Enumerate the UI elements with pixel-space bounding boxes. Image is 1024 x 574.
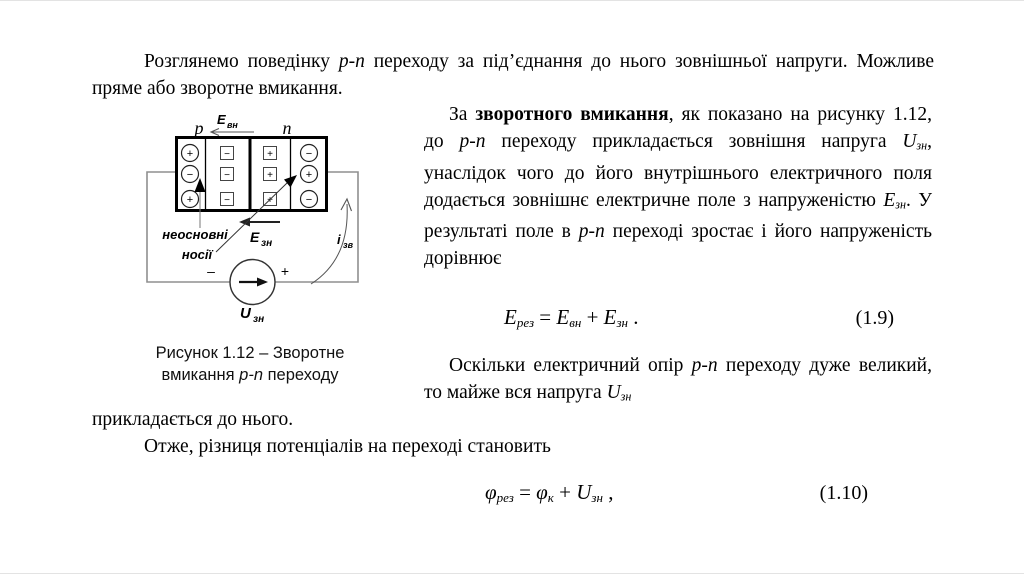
e-vn-sub: вн	[227, 120, 238, 130]
equation-1-9-row: Eрез = Eвн + Eзн . (1.9)	[424, 301, 894, 335]
equation-1-9: Eрез = Eвн + Eзн .	[504, 305, 639, 331]
minority-carriers-label: неосновні	[162, 227, 228, 242]
charge-sign: −	[224, 195, 230, 206]
charge-sign: +	[267, 170, 273, 181]
charge-sign: +	[306, 169, 312, 181]
charge-sign: −	[224, 149, 230, 160]
source-plus: +	[281, 263, 289, 279]
p-region-label: p	[193, 118, 204, 138]
figure-caption: Рисунок 1.12 – Зворотне вмикання p-n пер…	[128, 342, 372, 386]
charge-sign: −	[187, 169, 193, 181]
equation-1-10: φрез = φк + Uзн ,	[485, 480, 613, 506]
equation-number-1-9: (1.9)	[856, 307, 894, 330]
charge-sign: +	[187, 194, 193, 206]
n-region-label: n	[283, 118, 292, 138]
equation-1-10-row: φрез = φк + Uзн , (1.10)	[92, 476, 868, 510]
source-minus: –	[207, 263, 215, 279]
e-vn-label: E	[217, 112, 226, 127]
minority-carriers-label2: носії	[182, 247, 214, 262]
paragraph-reverse-bias: За зворотного вмикання, як показано на р…	[424, 101, 932, 272]
reverse-current-arrowhead	[341, 199, 352, 211]
u-zn-sub: зн	[253, 314, 264, 325]
reverse-current-arrow	[311, 204, 347, 284]
charge-sign: −	[306, 194, 312, 206]
paragraph-intro: Розглянемо поведінку p-n переходу за під…	[92, 48, 934, 102]
charge-sign: +	[187, 148, 193, 160]
e-zn-sub: зн	[261, 238, 272, 249]
e-zn-arrowhead	[239, 218, 250, 227]
i-zv-label: i	[337, 232, 341, 247]
slide-page: Розглянемо поведінку p-n переходу за під…	[0, 0, 1024, 574]
charge-sign: −	[224, 170, 230, 181]
paragraph-resistance-cont: прикладається до нього.	[92, 406, 934, 433]
paragraph-potential: Отже, різниця потенціалів на переході ст…	[92, 433, 934, 460]
charge-sign: −	[306, 148, 312, 160]
u-zn-label: U	[240, 305, 252, 322]
charge-sign: +	[267, 149, 273, 160]
figure-caption-line2: вмикання p-n переходу	[128, 364, 372, 386]
paragraph-resistance-col: Оскільки електричний опір p-n переходу д…	[424, 352, 932, 411]
i-zv-sub: зв	[343, 240, 354, 250]
charge-sign: +	[267, 195, 273, 206]
figure-caption-line1: Рисунок 1.12 – Зворотне	[128, 342, 372, 364]
e-zn-label: E	[250, 229, 260, 245]
equation-number-1-10: (1.10)	[820, 482, 868, 505]
pn-junction-diagram: + − + − − − + + + − + − p n E вн E	[130, 104, 405, 339]
